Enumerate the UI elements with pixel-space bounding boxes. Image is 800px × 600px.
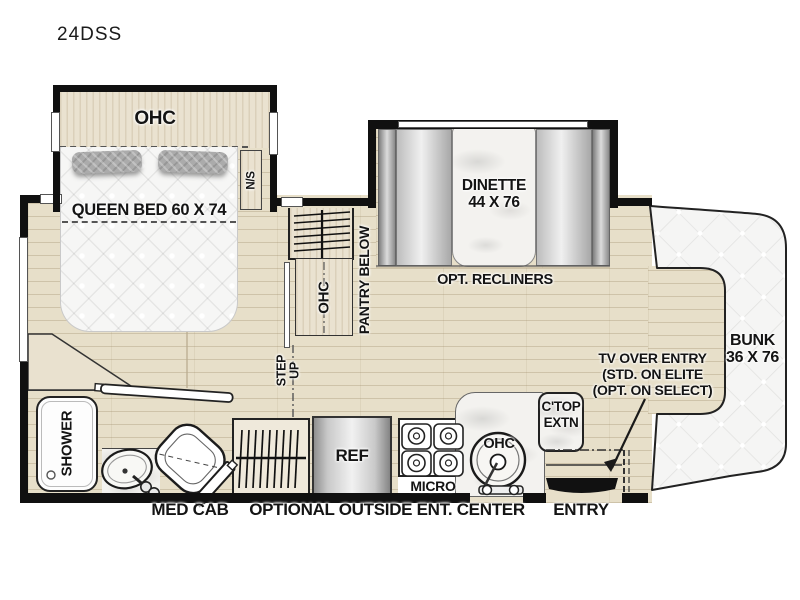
tv-note-line3: (OPT. ON SELECT) [575,382,730,398]
ctop-label-line2: EXTN [538,415,584,430]
window-dinette [398,121,588,128]
nightstand-label: N/S [245,163,258,199]
wall-top-cab [618,198,652,206]
refrigerator: REF [312,416,392,496]
dinette-bench-right-seat [536,129,592,266]
dinette-bench-left-back [378,129,396,266]
window-bed-left [51,112,60,152]
bed-slide-wall-top [53,85,277,92]
dinette-bench-right-back [592,129,610,266]
midship-ohc-label: OHC [317,270,332,326]
bath-sink-counter [102,448,160,495]
micro-label: MICRO [398,478,468,494]
shower-label: SHOWER [59,398,76,490]
refrigerator-label: REF [335,446,368,466]
window-bed-right [269,112,278,155]
step-up-label: STEP UP [275,349,302,393]
page-title: 24DSS [57,24,122,46]
window-left-wall [19,237,28,362]
bedroom-wardrobe [288,208,354,260]
kitchen-wardrobe [232,418,310,494]
bath-wall [28,383,102,391]
ctop-label-line1: C'TOP [538,399,584,414]
pillow-right [158,150,229,174]
dinette-bench-left-seat [396,129,452,266]
outside-ent-label: OPTIONAL OUTSIDE ENT. CENTER [248,500,526,520]
dinette-slide-wall-left [368,120,376,208]
bedroom-ohc-label: OHC [60,108,250,130]
queen-bed-label: QUEEN BED 60 X 74 [60,201,238,220]
tv-note-line2: (STD. ON ELITE [575,366,730,382]
dinette-label: DINETTE [452,177,536,195]
opt-recliners-label: OPT. RECLINERS [415,272,575,288]
dinette-size-label: 44 X 76 [452,194,536,212]
sink-ohc-label: OHC [478,436,520,452]
midship-divider [284,262,290,348]
pillow-left [72,150,143,174]
wall-bottom-block-right [622,493,648,503]
bunk-label: BUNK [710,332,795,350]
tv-note-line1: TV OVER ENTRY [575,350,730,366]
bed-center-dashed-line [62,221,236,223]
queen-bed [60,147,238,332]
wall-bottom-block-left [523,493,546,503]
window-top-mid [281,197,303,207]
med-cab-label: MED CAB [148,500,232,520]
pantry-below-label: PANTRY BELOW [356,213,372,347]
floorplan-canvas: 24DSS REF [0,0,800,600]
entry-label: ENTRY [546,500,616,520]
dinette-slide-wall-right [610,120,618,208]
